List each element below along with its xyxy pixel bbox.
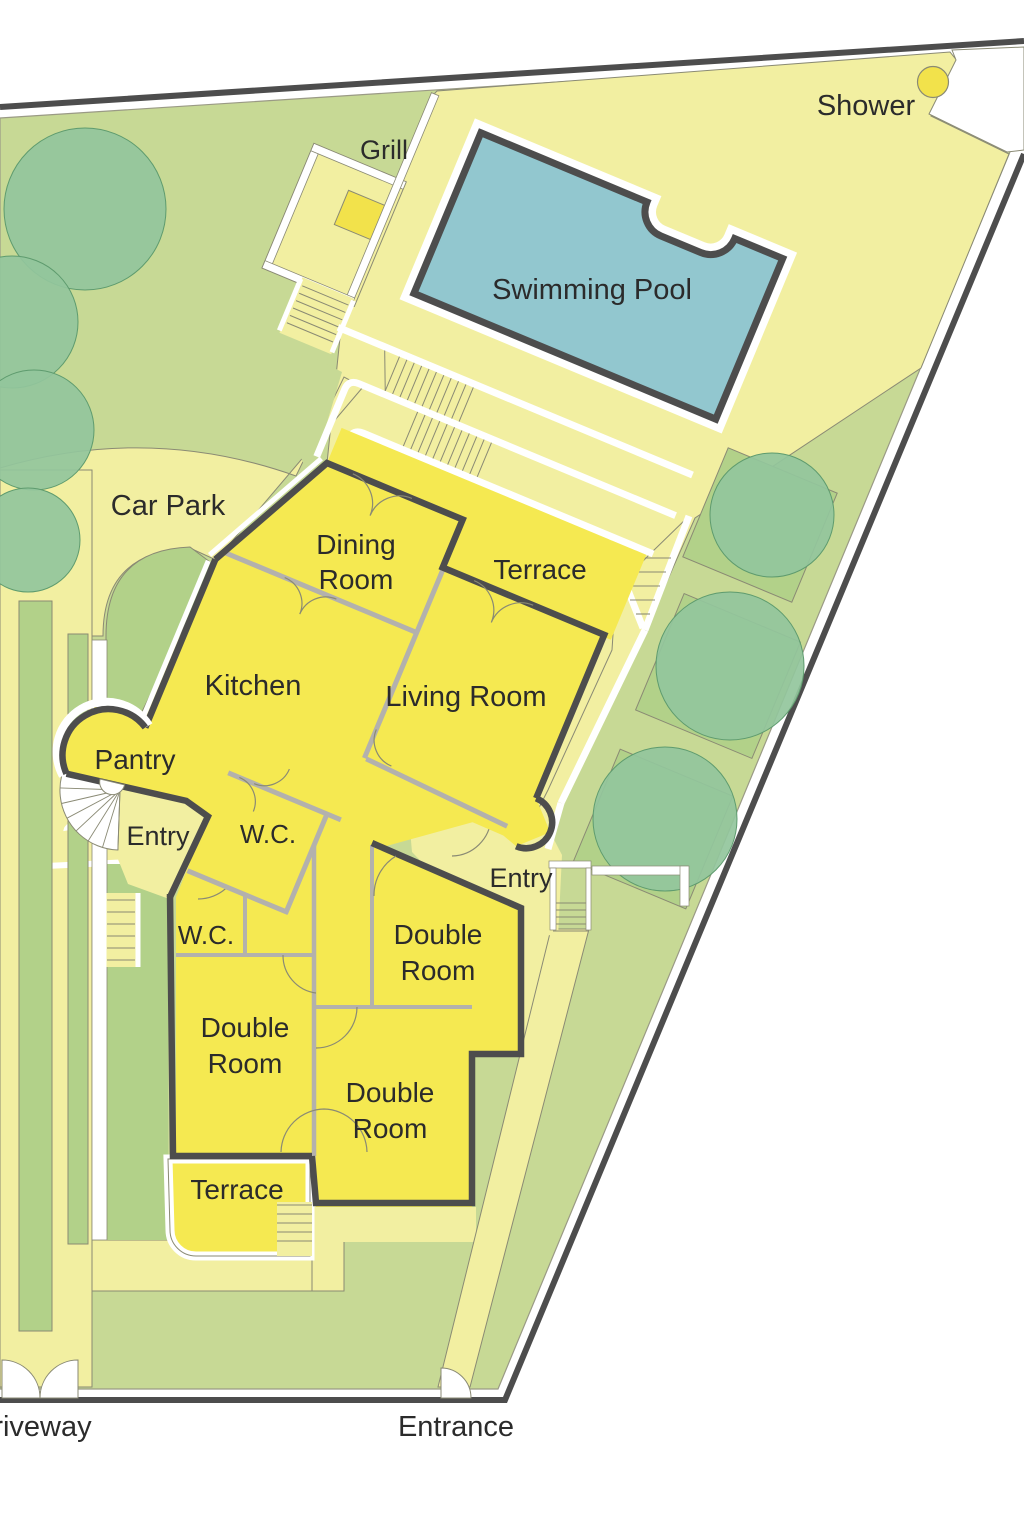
svg-text:Terrace: Terrace (190, 1174, 283, 1205)
svg-text:Room: Room (353, 1113, 428, 1144)
svg-text:Living Room: Living Room (385, 681, 546, 713)
svg-text:Double: Double (201, 1012, 290, 1043)
svg-text:Shower: Shower (817, 90, 916, 122)
svg-text:Entry: Entry (126, 821, 190, 851)
svg-text:Pantry: Pantry (95, 744, 176, 775)
svg-text:Double: Double (346, 1077, 435, 1108)
svg-text:Entry: Entry (489, 863, 553, 893)
svg-text:Driveway: Driveway (0, 1411, 92, 1443)
svg-text:Room: Room (208, 1048, 283, 1079)
svg-text:Room: Room (401, 955, 476, 986)
svg-text:Entrance: Entrance (398, 1411, 514, 1443)
svg-text:Double: Double (394, 919, 483, 950)
svg-text:Kitchen: Kitchen (205, 670, 302, 702)
svg-text:W.C.: W.C. (178, 920, 234, 950)
svg-text:Swimming Pool: Swimming Pool (492, 274, 692, 306)
svg-text:Car Park: Car Park (111, 490, 226, 522)
svg-text:Grill: Grill (360, 135, 408, 165)
svg-text:Dining: Dining (316, 529, 395, 560)
svg-text:W.C.: W.C. (240, 819, 296, 849)
svg-text:Terrace: Terrace (493, 554, 586, 585)
svg-text:Room: Room (319, 564, 394, 595)
